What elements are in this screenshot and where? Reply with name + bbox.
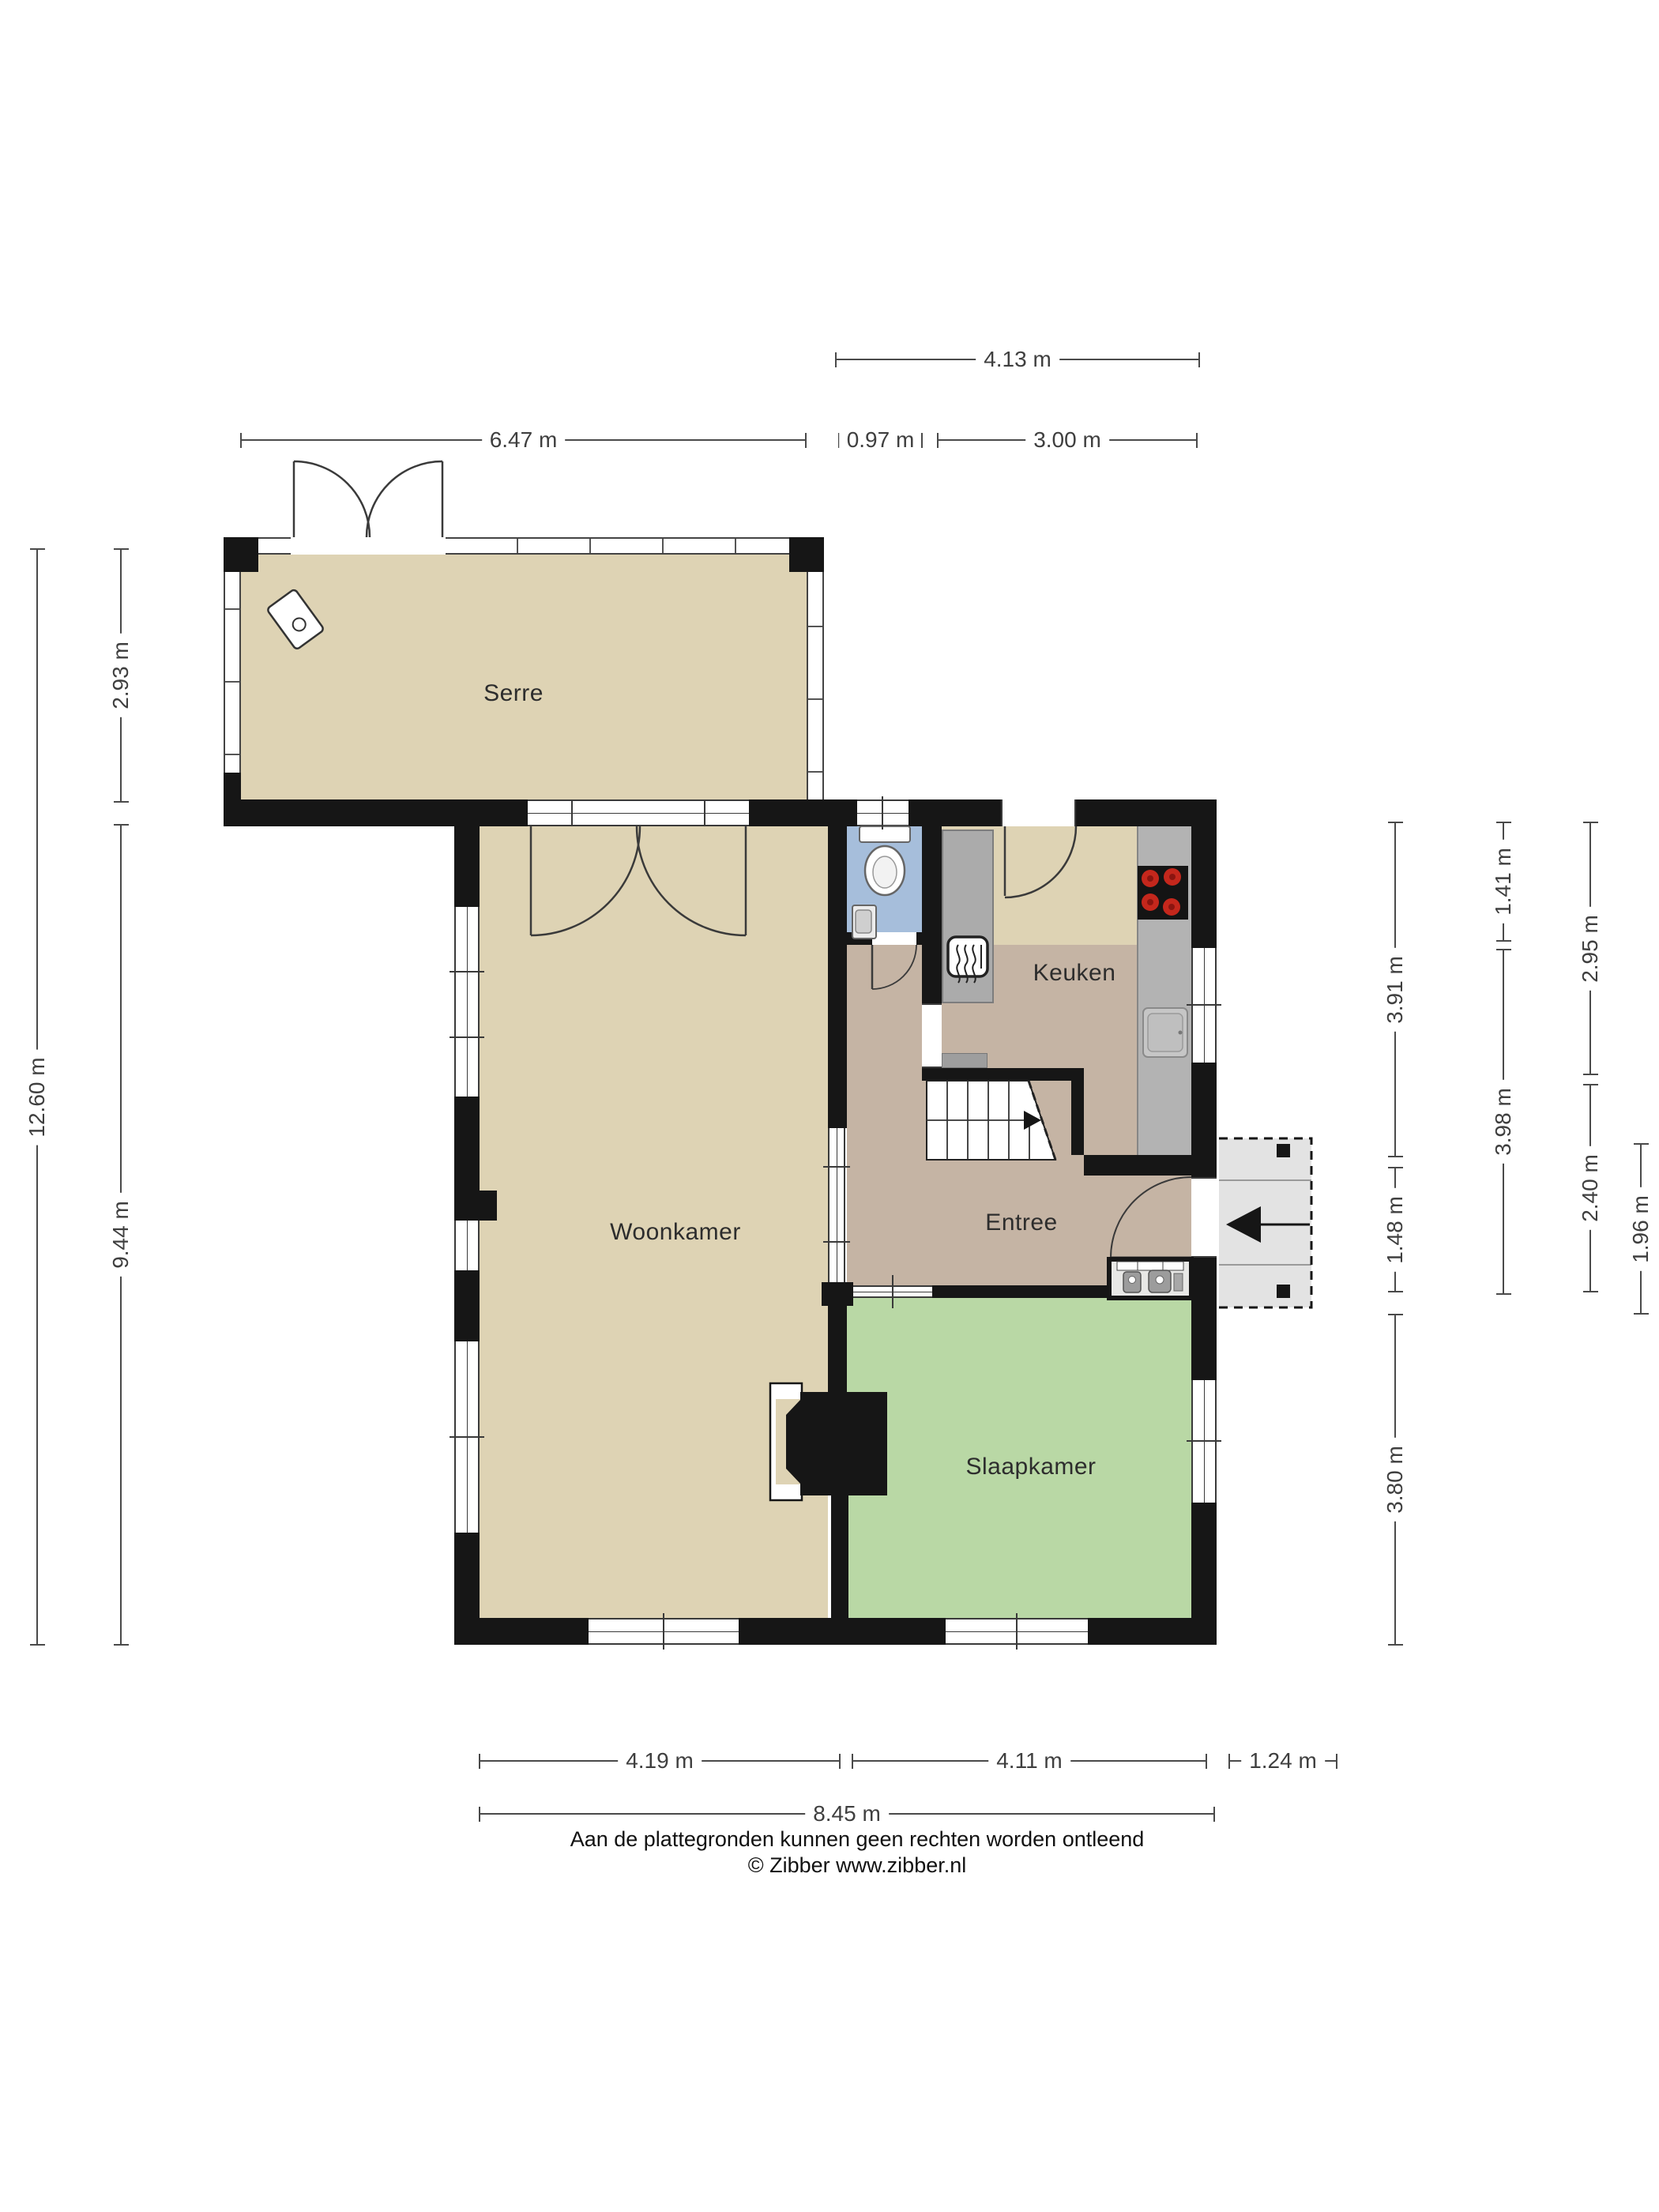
wall-toilet-bottom-2 <box>916 932 942 945</box>
kitchen-step-box <box>942 1053 987 1068</box>
dim-right-380: 3.80 m <box>1394 1315 1396 1645</box>
dim-left-293: 2.93 m <box>120 549 122 802</box>
dim-right-141: 1.41 m <box>1503 822 1504 941</box>
keuken-door-opening <box>1001 799 1076 826</box>
serre-corner-tl <box>224 537 258 572</box>
dim-right-148: 1.48 m <box>1394 1168 1396 1292</box>
dim-right-196: 1.96 m <box>1640 1144 1642 1314</box>
wall-divider-upper <box>828 826 847 1128</box>
dim-bottom-845: 8.45 m <box>480 1813 1214 1815</box>
room-label-woonkamer: Woonkamer <box>610 1219 741 1246</box>
wall-toilet-right <box>922 826 942 1003</box>
dim-right-398: 3.98 m <box>1503 950 1504 1294</box>
window-toilet <box>857 799 908 826</box>
disclaimer-line2: © Zibber www.zibber.nl <box>570 1853 1145 1879</box>
window-woonkamer-left-1 <box>454 907 480 1097</box>
floorplan-page: Serre Woonkamer Keuken Entree Slaapkamer… <box>0 0 1659 2212</box>
wall-stairs-top <box>922 1068 1084 1081</box>
room-label-slaapkamer: Slaapkamer <box>965 1454 1096 1480</box>
kitchen-counter <box>1137 826 1191 1156</box>
wall-entree-bottom <box>932 1285 1112 1298</box>
dim-top-300: 3.00 m <box>938 439 1197 441</box>
dim-right-240: 2.40 m <box>1589 1085 1591 1292</box>
serre-corner-bl <box>224 773 241 799</box>
wall-divider-block <box>822 1282 853 1306</box>
disclaimer: Aan de plattegronden kunnen geen rechten… <box>570 1826 1145 1879</box>
room-label-serre: Serre <box>483 680 544 707</box>
dim-bottom-411: 4.11 m <box>852 1760 1206 1762</box>
wall-keuken-step-v <box>1071 1081 1084 1155</box>
serre-corner-tr <box>789 537 824 572</box>
dim-top-097: 0.97 m <box>839 439 922 441</box>
wall-right-3 <box>1191 1258 1217 1380</box>
dim-top-647: 6.47 m <box>241 439 806 441</box>
wall-divider-mid <box>828 1306 847 1392</box>
wall-right-2 <box>1191 1063 1217 1177</box>
dim-top-413: 4.13 m <box>836 359 1199 360</box>
dim-right-391: 3.91 m <box>1394 822 1396 1157</box>
wall-left-3 <box>454 1270 480 1341</box>
wall-bottom-2 <box>739 1618 946 1645</box>
serre-glass-right <box>807 555 824 799</box>
wall-top-3 <box>908 799 1001 826</box>
wall-keuken-step-h <box>1084 1155 1191 1176</box>
wall-top-2 <box>749 799 857 826</box>
wall-divider-lower <box>831 1495 848 1618</box>
dim-right-295: 2.95 m <box>1589 822 1591 1074</box>
opening-hal-keuken <box>922 1003 942 1068</box>
window-slaapkamer-bottom <box>946 1618 1088 1645</box>
interior-window-entree-slaapkamer <box>853 1285 932 1298</box>
porch <box>1219 1138 1311 1307</box>
serre-floor <box>241 555 807 799</box>
toilet-floor <box>847 826 922 932</box>
porch-post-top <box>1277 1144 1290 1157</box>
porch-post-bottom <box>1277 1285 1290 1298</box>
room-label-entree: Entree <box>985 1209 1057 1236</box>
window-woonkamer-left-3 <box>454 1341 480 1533</box>
window-slaapkamer-right <box>1191 1380 1217 1503</box>
window-serre-woonkamer <box>528 799 749 826</box>
wall-right-1 <box>1191 799 1217 948</box>
entrance-arrow <box>1226 1206 1261 1243</box>
window-woonkamer-bottom <box>589 1618 739 1645</box>
window-woonkamer-left-2 <box>454 1221 480 1270</box>
wall-top-1 <box>224 799 528 826</box>
dim-bottom-124: 1.24 m <box>1229 1760 1337 1762</box>
wall-left-stub <box>480 1191 497 1221</box>
disclaimer-line1: Aan de plattegronden kunnen geen rechten… <box>570 1826 1145 1853</box>
wall-bottom-1 <box>454 1618 589 1645</box>
dim-left-944: 9.44 m <box>120 825 122 1645</box>
wall-right-4 <box>1191 1503 1217 1645</box>
front-door-opening <box>1191 1177 1217 1258</box>
interior-window-woonkamer-entree <box>828 1128 845 1282</box>
wall-left-2 <box>454 1097 480 1221</box>
dim-left-1260: 12.60 m <box>36 549 38 1645</box>
wall-left-1 <box>454 826 480 907</box>
serre-double-door <box>294 461 442 537</box>
wall-toilet-bottom-1 <box>847 932 872 945</box>
room-label-keuken: Keuken <box>1033 960 1116 987</box>
kitchen-tall-cabinet <box>942 829 994 1003</box>
dim-bottom-419: 4.19 m <box>480 1760 840 1762</box>
serre-glass-top-right <box>446 537 824 555</box>
serre-glass-left <box>224 537 241 799</box>
window-keuken-right <box>1191 948 1217 1063</box>
